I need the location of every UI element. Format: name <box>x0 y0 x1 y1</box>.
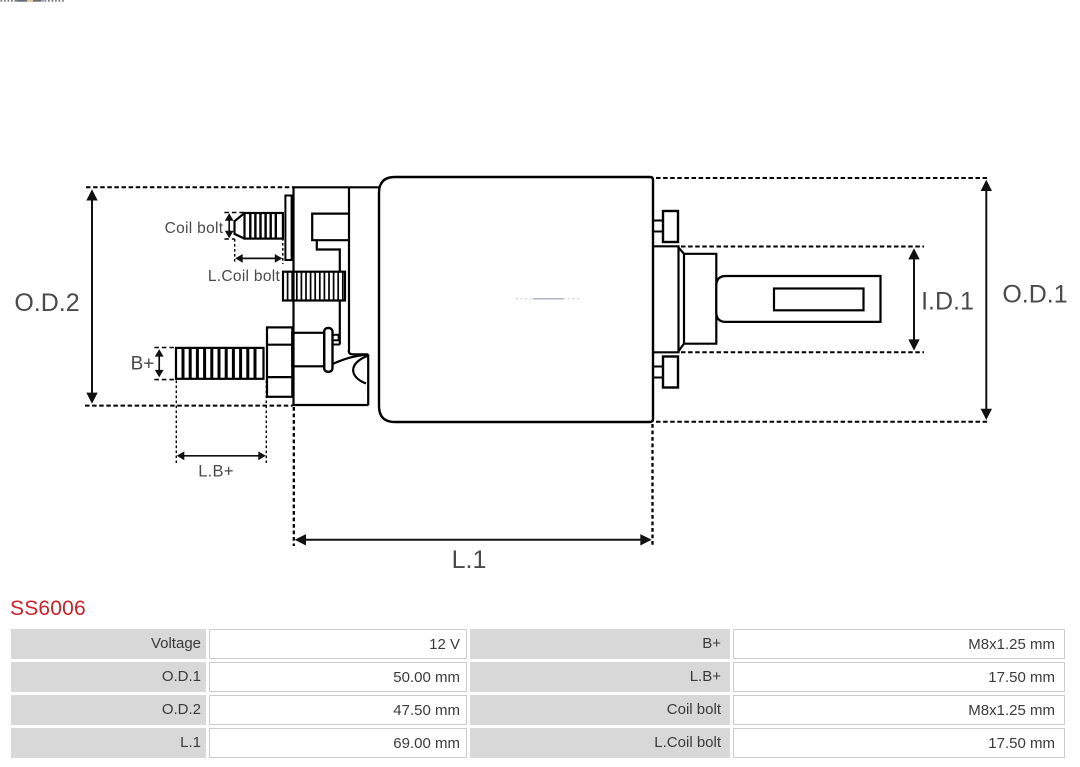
svg-text:L.B+: L.B+ <box>198 463 234 481</box>
svg-text:O.D.1: O.D.1 <box>1002 281 1067 309</box>
svg-text:Coil bolt: Coil bolt <box>165 220 224 237</box>
svg-text:O.D.2: O.D.2 <box>14 289 79 317</box>
svg-text:I.D.1: I.D.1 <box>921 288 974 316</box>
svg-text:L.Coil bolt: L.Coil bolt <box>208 268 281 285</box>
svg-text:L.1: L.1 <box>452 546 487 574</box>
svg-text:B+: B+ <box>131 354 155 375</box>
